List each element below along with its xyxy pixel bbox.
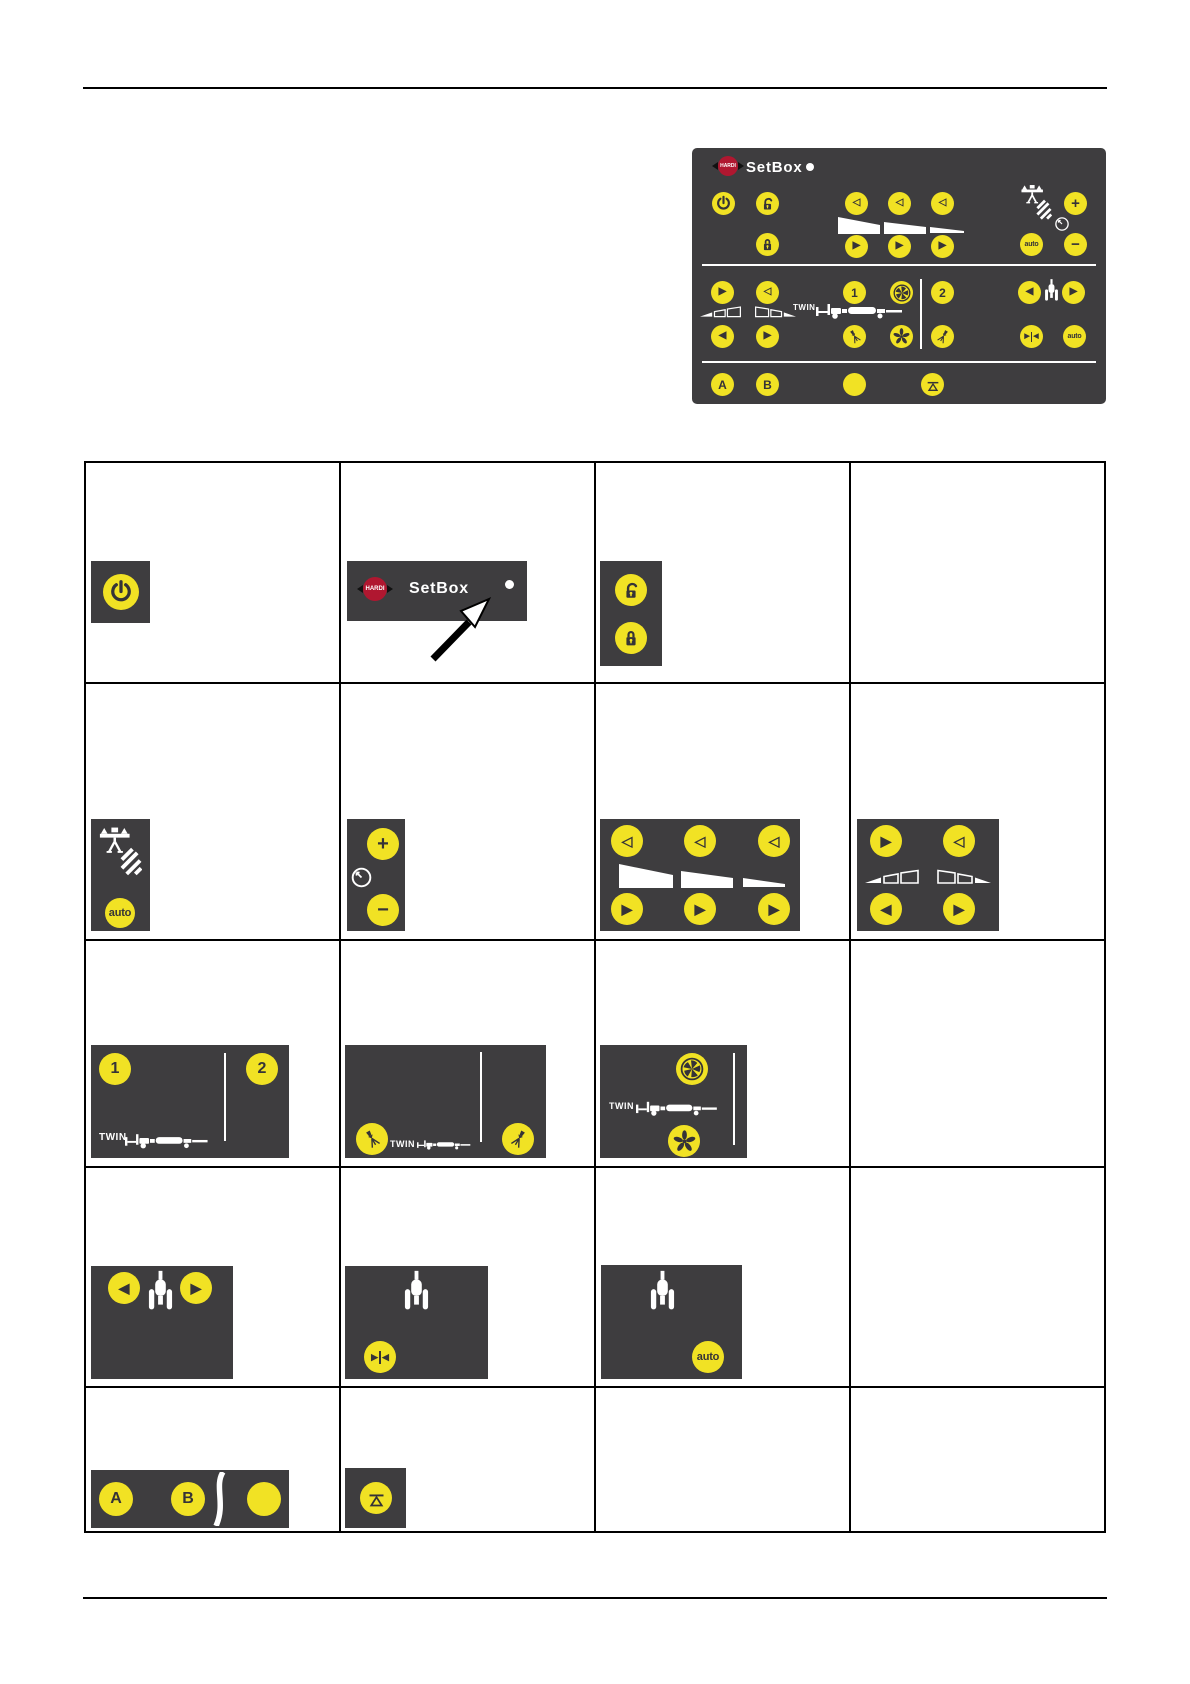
fold-in-right-button: ▶ (943, 893, 975, 925)
logo-text: HARDI (718, 156, 738, 176)
twin-label: TWIN (390, 1140, 415, 1149)
auto-track-figure: auto (601, 1265, 742, 1379)
power-button (712, 192, 735, 215)
console-divider-1 (702, 264, 1096, 266)
console-title: SetBox (746, 160, 802, 175)
track-left-button: ◀ (1018, 281, 1041, 304)
table-hline-2 (86, 939, 1104, 941)
wavy-divider-icon (209, 1472, 229, 1526)
boom-fold-indicator-icon (700, 302, 796, 319)
section-open-button-1: ◁ (611, 825, 643, 857)
twin-sprayer-side-icon (636, 1097, 730, 1116)
bottom-rule (83, 1597, 1107, 1599)
hardi-logo: HARDI (712, 156, 744, 176)
section-close-button-2: ▶ (888, 235, 911, 258)
power-led-icon (806, 163, 814, 171)
track-right-button: ▶ (1062, 281, 1085, 304)
section-open-button-2: ◁ (888, 192, 911, 215)
lock-button (756, 233, 779, 256)
section-open-button-2: ◁ (684, 825, 716, 857)
track-center-button: ▶◀ (364, 1341, 396, 1373)
table-hline-4 (86, 1386, 1104, 1388)
boom-height-figure: auto (91, 819, 150, 931)
unlock-button (615, 574, 647, 606)
twin-preset-2-button: 2 (931, 281, 954, 304)
top-rule (83, 87, 1107, 89)
tank-select-figure: A B (91, 1470, 289, 1528)
tank-a-button: A (711, 373, 734, 396)
blank-function-button (843, 373, 866, 396)
power-button-figure (91, 561, 150, 623)
sprayer-rear-icon (147, 1270, 174, 1318)
fold-out-left-button: ◁ (756, 281, 779, 304)
logo-right-arrow-icon (738, 162, 744, 170)
slant-level-figure (345, 1468, 406, 1528)
nozzle-angle-back-button (843, 325, 866, 348)
table-hline-3 (86, 1166, 1104, 1168)
auto-track-button: auto (692, 1341, 724, 1373)
fan-speed-button (676, 1053, 708, 1085)
section-close-button-2: ▶ (684, 893, 716, 925)
logo-right-arrow-icon (387, 585, 393, 593)
table-hline-1 (86, 682, 1104, 684)
slant-level-button (360, 1482, 392, 1514)
tank-b-button: B (171, 1482, 205, 1516)
lock-button (615, 622, 647, 654)
section-close-button-3: ▶ (758, 893, 790, 925)
boom-section-indicator-icon (834, 214, 966, 236)
twin-label: TWIN (99, 1133, 127, 1143)
clock-icon (350, 866, 373, 889)
sprayer-rear-icon (403, 1270, 430, 1318)
fold-out-right-button: ▶ (870, 825, 902, 857)
blank-function-button (247, 1482, 281, 1516)
lock-buttons-figure (600, 561, 662, 666)
manual-page: HARDI SetBox ◁ ◁ ◁ ▶ ▶ ▶ + auto − ▶ ◁ ◀ … (0, 0, 1190, 1684)
sprayer-rear-icon (649, 1270, 676, 1318)
fold-in-right-button: ▶ (756, 325, 779, 348)
dose-plus-button: + (1064, 192, 1087, 215)
fold-out-right-button: ▶ (711, 281, 734, 304)
nozzle-angle-forward-button (931, 325, 954, 348)
twin-boom-line (224, 1053, 226, 1141)
track-center-button: ▶◀ (1020, 325, 1043, 348)
auto-track-button: auto (1063, 325, 1086, 348)
track-steer-figure: ◀ ▶ (91, 1266, 233, 1379)
boom-fold-indicator-icon (865, 864, 991, 886)
fan-on-off-button (668, 1125, 700, 1157)
clock-icon (1054, 216, 1070, 232)
slant-level-button (921, 373, 944, 396)
track-right-button: ▶ (180, 1272, 212, 1304)
twin-sprayer-side-icon (417, 1137, 479, 1150)
twin-label: TWIN (609, 1102, 634, 1111)
nozzle-angle-forward-button (502, 1123, 534, 1155)
track-left-button: ◀ (108, 1272, 140, 1304)
auto-height-button: auto (105, 898, 135, 928)
twin-boom-line (480, 1052, 482, 1142)
unlock-button (756, 192, 779, 215)
dose-buttons-figure: + − (347, 819, 405, 931)
console-divider-2 (702, 361, 1096, 363)
section-open-button-3: ◁ (758, 825, 790, 857)
table-vline-1 (339, 463, 341, 1531)
twin-boom-line (733, 1053, 735, 1145)
twin-preset-2-button: 2 (246, 1053, 278, 1085)
dose-plus-button: + (367, 828, 399, 860)
power-led-icon (505, 580, 514, 589)
setbox-console: HARDI SetBox ◁ ◁ ◁ ▶ ▶ ▶ + auto − ▶ ◁ ◀ … (692, 148, 1106, 404)
sprayer-rear-icon (1044, 279, 1059, 305)
section-open-button-1: ◁ (845, 192, 868, 215)
section-open-button-3: ◁ (931, 192, 954, 215)
tank-a-button: A (99, 1482, 133, 1516)
table-vline-2 (594, 463, 596, 1531)
fold-in-left-button: ◀ (711, 325, 734, 348)
boom-fold-figure: ▶ ◁ ◀ ▶ (857, 819, 999, 931)
tank-b-button: B (756, 373, 779, 396)
led-pointer-arrow-icon (427, 587, 493, 665)
twin-sprayer-side-icon (125, 1129, 221, 1149)
nozzle-angle-figure: TWIN (345, 1045, 546, 1158)
section-close-button-3: ▶ (931, 235, 954, 258)
auto-height-button: auto (1020, 233, 1043, 256)
track-center-figure: ▶◀ (345, 1266, 488, 1379)
fan-on-off-button (890, 325, 913, 348)
boom-section-indicator-icon (613, 861, 787, 891)
table-vline-3 (849, 463, 851, 1531)
fold-in-left-button: ◀ (870, 893, 902, 925)
twin-preset-figure: 1 2 TWIN (91, 1045, 289, 1158)
dose-minus-button: − (367, 894, 399, 926)
twin-sprayer-side-icon (814, 299, 918, 319)
twin-label: TWIN (793, 304, 815, 312)
section-close-button-1: ▶ (611, 893, 643, 925)
boom-section-figure: ◁ ◁ ◁ ▶ ▶ ▶ (600, 819, 800, 931)
fold-out-left-button: ◁ (943, 825, 975, 857)
hardi-logo: HARDI (357, 577, 393, 601)
logo-text: HARDI (363, 577, 387, 601)
fan-buttons-figure: TWIN (600, 1045, 747, 1158)
button-legend-table: HARDI SetBox auto + − ◁ ◁ ◁ (84, 461, 1106, 1533)
dose-minus-button: − (1064, 233, 1087, 256)
nozzle-angle-back-button (356, 1123, 388, 1155)
boom-height-icon (98, 826, 142, 876)
power-button (103, 574, 139, 610)
twin-preset-1-button: 1 (99, 1053, 131, 1085)
section-close-button-1: ▶ (845, 235, 868, 258)
twin-boom-line (920, 279, 922, 349)
boom-height-icon (1020, 184, 1052, 220)
